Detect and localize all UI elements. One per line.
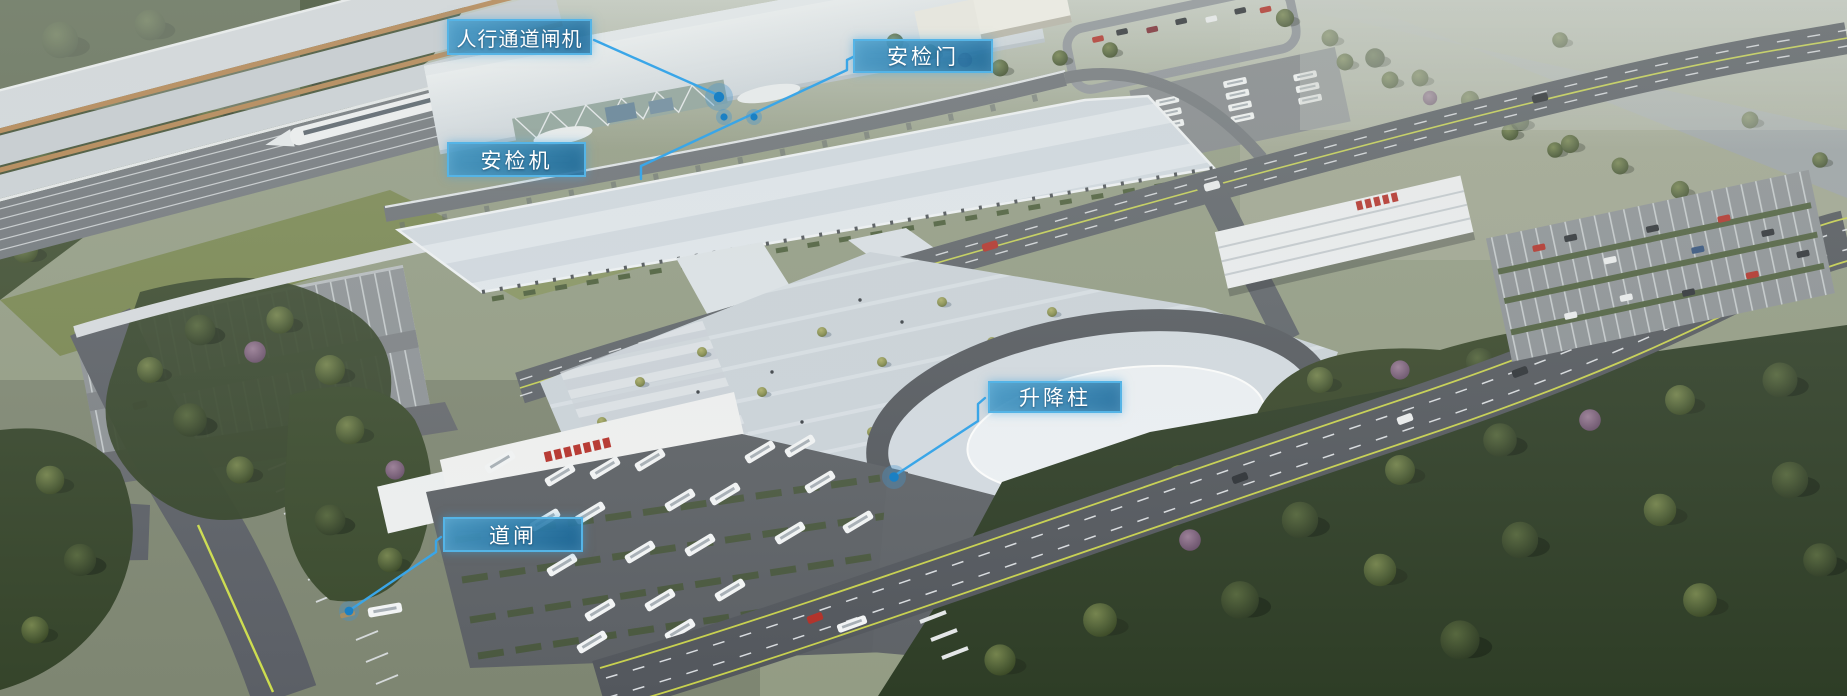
callout-label-pedestrian-channel-gate: 人行通道闸机 <box>447 19 592 55</box>
callout-label-lifting-bollard: 升降柱 <box>988 381 1122 413</box>
callout-label-security-door: 安检门 <box>853 39 993 73</box>
marker-dot-barrier-gate-icon <box>339 601 359 621</box>
leader-pedestrian-gate <box>594 40 718 95</box>
aerial-render-hero: 人行通道闸机 安检门 安检机 升降柱 道闸 <box>0 0 1847 696</box>
leader-barrier-gate <box>350 537 441 610</box>
marker-dot-pedestrian-gate-icon <box>705 83 733 111</box>
callout-label-road-barrier-gate: 道闸 <box>443 517 583 552</box>
leader-lifting-bollard <box>894 398 985 476</box>
marker-dot-lifting-bollard-icon <box>882 465 906 489</box>
callout-label-security-scanner: 安检机 <box>447 142 586 177</box>
callout-leaders <box>0 0 1847 696</box>
marker-dot-security-door-icon <box>716 109 762 125</box>
